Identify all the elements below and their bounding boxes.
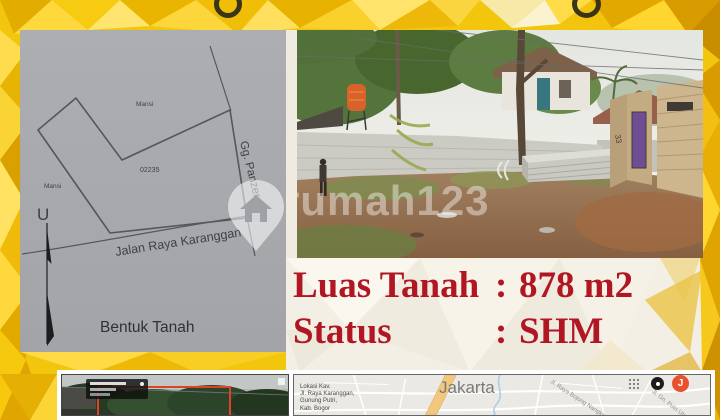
neighbor-label-left: Mansi	[44, 183, 61, 190]
land-photo: 33 rumah123	[297, 30, 703, 258]
detail-row-status: Status : SHM	[293, 310, 673, 356]
address-line: Lokasi Kav.	[300, 384, 354, 391]
address-line: Jl. Raya Karanggan,	[300, 391, 354, 398]
rumah123-watermark: rumah123	[297, 180, 489, 222]
neighbor-label-top: Mansi	[136, 101, 153, 108]
property-flyer: Mansi Mansi 02235 Gg. Panzer Jalan Raya …	[0, 0, 720, 420]
expand-icon[interactable]	[278, 378, 285, 385]
street-view-photo	[61, 374, 289, 416]
detail-separator: :	[495, 310, 519, 353]
parcel-number: 02235	[140, 167, 160, 174]
detail-value: SHM	[519, 310, 603, 353]
apps-grid-icon[interactable]	[629, 379, 639, 389]
close-icon[interactable]	[140, 382, 144, 386]
street-view-info-panel	[86, 379, 148, 399]
address-line: Gunung Putri,	[300, 398, 354, 405]
location-strip: Jakarta Lokasi Kav. Jl. Raya Karanggan, …	[57, 370, 715, 420]
detail-value: 878 m2	[519, 264, 633, 307]
account-circle-icon[interactable]	[651, 377, 664, 390]
detail-separator: :	[495, 264, 519, 307]
sketch-caption: Bentuk Tanah	[100, 319, 195, 336]
land-shape-sketch: Mansi Mansi 02235 Gg. Panzer Jalan Raya …	[20, 30, 286, 352]
detail-label: Status	[293, 310, 495, 353]
detail-row-land-area: Luas Tanah : 878 m2	[293, 264, 673, 310]
avatar[interactable]: J	[672, 375, 689, 392]
north-letter: U	[37, 205, 49, 224]
location-map: Jakarta Lokasi Kav. Jl. Raya Karanggan, …	[293, 374, 711, 416]
address-line: Kab. Bogor	[300, 406, 354, 413]
property-details: Luas Tanah : 878 m2 Status : SHM	[293, 264, 673, 356]
map-address-block: Lokasi Kav. Jl. Raya Karanggan, Gunung P…	[300, 384, 354, 413]
detail-label: Luas Tanah	[293, 264, 495, 307]
map-city-label: Jakarta	[439, 378, 495, 398]
